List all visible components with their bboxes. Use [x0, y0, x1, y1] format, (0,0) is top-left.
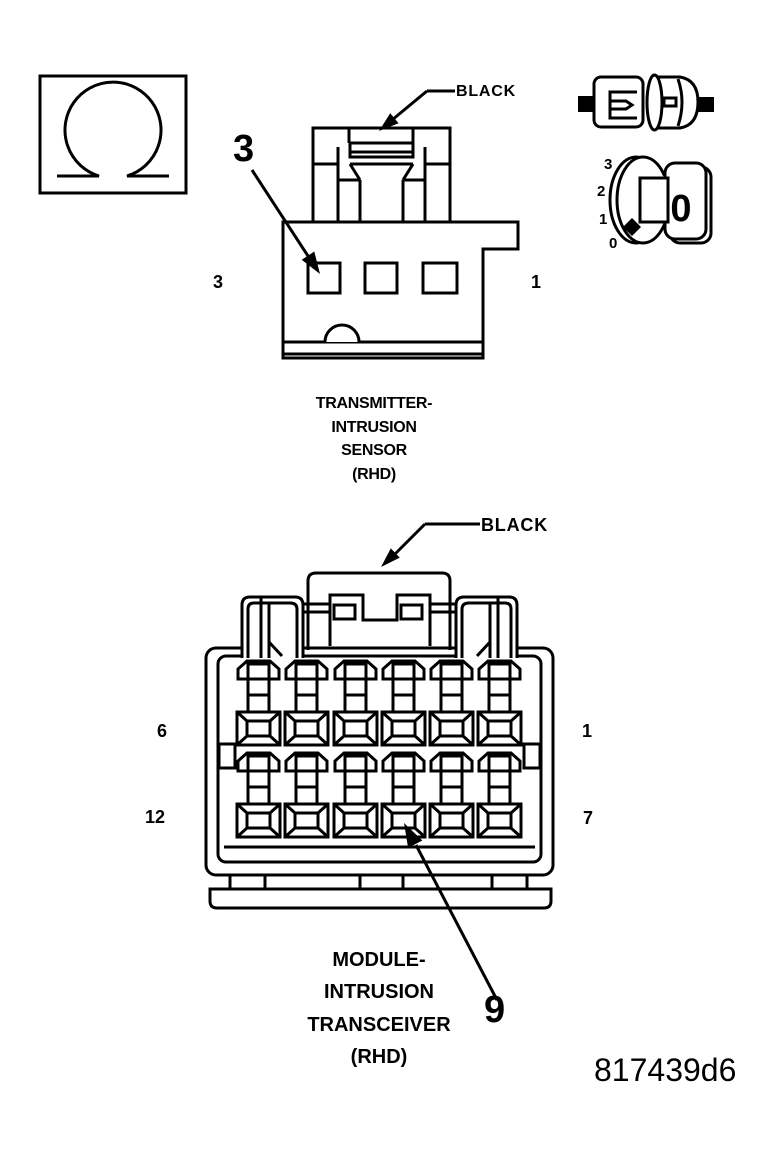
caption-line: SENSOR [274, 439, 474, 463]
wire-color-leader-bottom [381, 524, 480, 567]
pin-label-1: 1 [582, 722, 592, 740]
wire-stub-right [698, 97, 714, 112]
bottom-connector-caption: MODULE- INTRUSION TRANSCEIVER (RHD) [284, 944, 474, 1073]
wire-color-label-top: BLACK [456, 84, 516, 100]
pin-3-callout-label: 3 [233, 130, 254, 168]
ignition-position-3: 3 [604, 157, 612, 172]
caption-line: (RHD) [274, 463, 474, 487]
caption-line: (RHD) [284, 1041, 474, 1073]
terminal-grid [237, 661, 521, 837]
pin-1-cavity [423, 263, 457, 293]
module-connector-drawing [206, 524, 553, 1000]
left-ear [242, 597, 303, 658]
pin-label-7: 7 [583, 809, 593, 827]
figure-id: 817439d6 [594, 1054, 736, 1086]
wire-color-label-bottom: BLACK [481, 516, 548, 534]
right-ear [456, 597, 517, 658]
pin-label-right-top-connector: 1 [531, 273, 541, 291]
pin-label-left-top-connector: 3 [213, 273, 223, 291]
ohmmeter-icon [40, 76, 186, 193]
caption-line: TRANSCEIVER [284, 1009, 474, 1041]
top-connector-caption: TRANSMITTER- INTRUSION SENSOR (RHD) [274, 392, 474, 486]
ignition-position-2: 2 [597, 184, 605, 199]
key-shaft [640, 178, 668, 222]
connector-latch [313, 128, 450, 222]
wire-color-leader-top [379, 91, 455, 131]
ignition-position-0: 0 [609, 236, 617, 251]
caption-line: INTRUSION [284, 976, 474, 1008]
caption-line: TRANSMITTER- [274, 392, 474, 416]
pin-2-cavity [365, 263, 397, 293]
caption-line: INTRUSION [274, 416, 474, 440]
base-rail [210, 889, 551, 908]
pin-9-callout-label: 9 [484, 991, 505, 1029]
figure-page: BLACK 3 3 1 TRANSMITTER- INTRUSION SENSO… [0, 0, 770, 1156]
caption-line: MODULE- [284, 944, 474, 976]
key-position-label: 0 [666, 190, 696, 228]
pin-label-12: 12 [145, 808, 165, 826]
ignition-position-1: 1 [599, 212, 607, 227]
pin-label-6: 6 [157, 722, 167, 740]
connector-pair-icon [578, 75, 714, 130]
transmitter-connector-drawing [252, 91, 518, 358]
